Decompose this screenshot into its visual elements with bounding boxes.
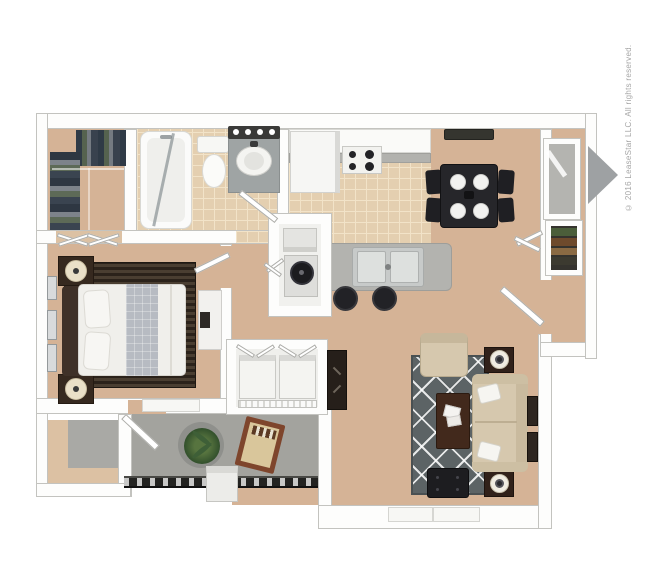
sofa-armrest-bottom: [472, 462, 528, 472]
living-window-mullion: [432, 507, 434, 522]
pantry-shelf-items: [551, 238, 577, 246]
sink-basin-right: [390, 251, 419, 283]
front-door-open-leaf: [588, 146, 618, 204]
bedroom-wall-art: [47, 344, 57, 372]
bar-stool-right: [372, 286, 397, 311]
place-setting-plate: [450, 174, 466, 190]
media-console: [327, 350, 347, 410]
wire-shelf: [238, 400, 317, 408]
vanity-light-bulb: [245, 129, 251, 135]
pantry-shelf-items: [551, 248, 577, 255]
ottoman-button: [456, 488, 459, 491]
table-centerpiece: [464, 191, 474, 199]
bar-stool-left: [333, 286, 358, 311]
pantry-shelf-items: [551, 257, 577, 265]
vanity-light-bulb: [233, 129, 239, 135]
closet-rod-vertical: [88, 168, 90, 230]
dryer: [279, 355, 316, 399]
bedroom-wall-art: [47, 310, 57, 340]
ottoman-button: [456, 476, 459, 479]
bed-duvet-runner: [126, 284, 158, 376]
bedroom-wall-art: [47, 276, 57, 300]
wall-living-right: [538, 334, 552, 529]
refrigerator: [290, 131, 340, 193]
sofa-armrest-top: [472, 374, 528, 384]
patio-utility-box: [206, 466, 238, 502]
floor-plan-canvas: © 2016 LeaseStar LLC. All rights reserve…: [0, 0, 650, 585]
utility-shelf-unit: [283, 228, 317, 252]
living-wall-art: [527, 432, 538, 462]
armchair: [420, 333, 468, 377]
washer: [239, 355, 276, 399]
dining-chair: [497, 197, 515, 222]
ottoman-button: [436, 476, 439, 479]
hanging-clothes: [76, 130, 126, 166]
storage-wall-face-bottom: [48, 468, 118, 483]
place-setting-plate: [450, 203, 466, 219]
copyright-notice: © 2016 LeaseStar LLC. All rights reserve…: [624, 22, 638, 212]
sink-faucet: [385, 264, 391, 270]
living-window: [388, 507, 480, 522]
place-setting-plate: [473, 203, 489, 219]
living-wall-art: [527, 396, 538, 426]
dining-chair: [497, 169, 515, 194]
vanity-faucet: [250, 141, 258, 147]
place-setting-plate: [473, 174, 489, 190]
bed-foot-fold: [170, 285, 172, 375]
water-heater-cap: [299, 270, 304, 275]
toilet-tank: [197, 136, 229, 153]
stove-burner: [349, 163, 356, 170]
living-lamp-bottom-ring: [495, 479, 504, 488]
vanity-light-bulb: [257, 129, 263, 135]
ottoman-button: [436, 488, 439, 491]
table-lamp-top-finial: [73, 268, 79, 274]
ottoman: [427, 468, 469, 498]
wall-top: [36, 113, 597, 129]
opening-entry-living-door: [540, 280, 552, 334]
stove-burner: [365, 162, 374, 171]
living-lamp-top-ring: [495, 355, 504, 364]
table-lamp-bottom-finial: [73, 386, 79, 392]
bathtub-basin: [147, 138, 185, 222]
wall-left: [36, 113, 48, 497]
bedroom-window: [142, 399, 200, 412]
vanity-light-bulb: [269, 129, 275, 135]
dresser-item: [200, 312, 210, 328]
toilet-bowl: [202, 154, 226, 188]
vanity-sink-basin: [244, 152, 264, 170]
folded-clothes-stack: [50, 152, 80, 230]
bed-pillow: [83, 289, 112, 329]
sofa-cushion-split: [475, 421, 517, 423]
stove-burner: [349, 151, 356, 158]
dining-ceiling-light: [444, 129, 494, 140]
pantry-shelf-items: [551, 228, 577, 236]
sink-basin-left: [357, 251, 386, 283]
wall-storage-bottom: [36, 483, 131, 497]
range-stove: [342, 146, 382, 174]
stove-burner: [365, 150, 374, 159]
bed-pillow: [83, 331, 112, 371]
